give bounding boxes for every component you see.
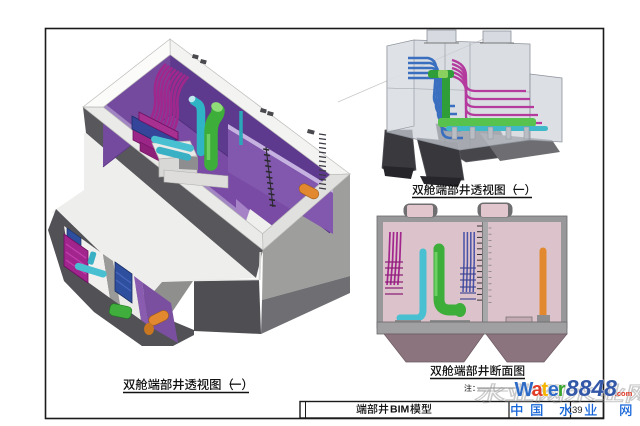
- svg-text:BIM: BIM: [390, 404, 410, 416]
- svg-text:39: 39: [572, 405, 583, 416]
- svg-text:r: r: [558, 379, 566, 401]
- svg-text:.com: .com: [615, 389, 633, 398]
- svg-text:8848: 8848: [566, 375, 617, 401]
